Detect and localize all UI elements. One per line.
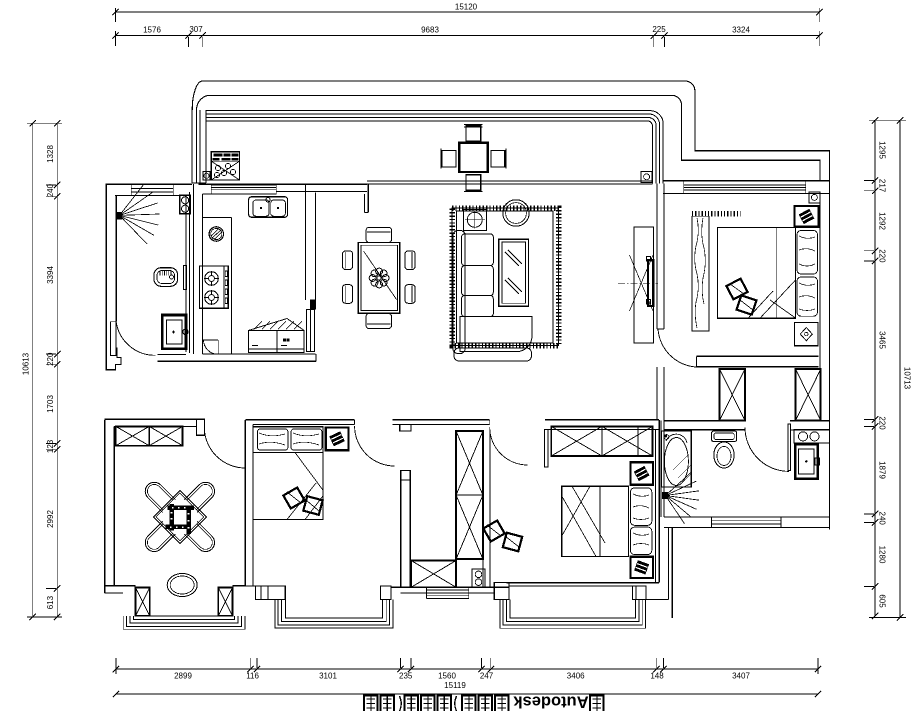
svg-text:605: 605 [878, 594, 887, 608]
svg-text:1292: 1292 [878, 212, 887, 230]
svg-text:3394: 3394 [46, 266, 55, 284]
svg-text:2992: 2992 [46, 510, 55, 528]
svg-text:240: 240 [46, 183, 55, 197]
svg-text:148: 148 [650, 672, 664, 681]
svg-text:1576: 1576 [143, 26, 161, 35]
svg-text:116: 116 [246, 672, 259, 681]
svg-text:1879: 1879 [878, 461, 887, 479]
svg-text:2899: 2899 [174, 672, 192, 681]
svg-text:3406: 3406 [567, 672, 585, 681]
svg-text:220: 220 [878, 416, 887, 430]
svg-text:15120: 15120 [455, 3, 478, 12]
svg-text:235: 235 [399, 672, 413, 681]
svg-text:3465: 3465 [878, 331, 887, 349]
svg-text:3324: 3324 [732, 26, 750, 35]
svg-text:247: 247 [480, 672, 494, 681]
svg-text:1560: 1560 [438, 672, 456, 681]
svg-text:220: 220 [878, 249, 887, 263]
svg-text:1280: 1280 [878, 546, 887, 564]
svg-text:240: 240 [878, 512, 887, 526]
svg-text:1703: 1703 [46, 395, 55, 413]
svg-text:15119: 15119 [444, 681, 466, 690]
svg-text:9683: 9683 [421, 26, 439, 35]
svg-text:10613: 10613 [22, 352, 31, 375]
svg-text:613: 613 [46, 595, 55, 609]
svg-text:123: 123 [46, 439, 55, 453]
svg-text:Autodesk: Autodesk [513, 693, 589, 711]
svg-text:3407: 3407 [732, 672, 750, 681]
svg-text:220: 220 [46, 352, 55, 366]
svg-text:3101: 3101 [319, 672, 337, 681]
svg-text:307: 307 [189, 25, 203, 34]
svg-text:225: 225 [652, 25, 666, 34]
svg-text:1328: 1328 [46, 145, 55, 163]
svg-text:10713: 10713 [903, 367, 912, 390]
svg-text:217: 217 [878, 179, 887, 193]
svg-text:1295: 1295 [878, 141, 887, 159]
